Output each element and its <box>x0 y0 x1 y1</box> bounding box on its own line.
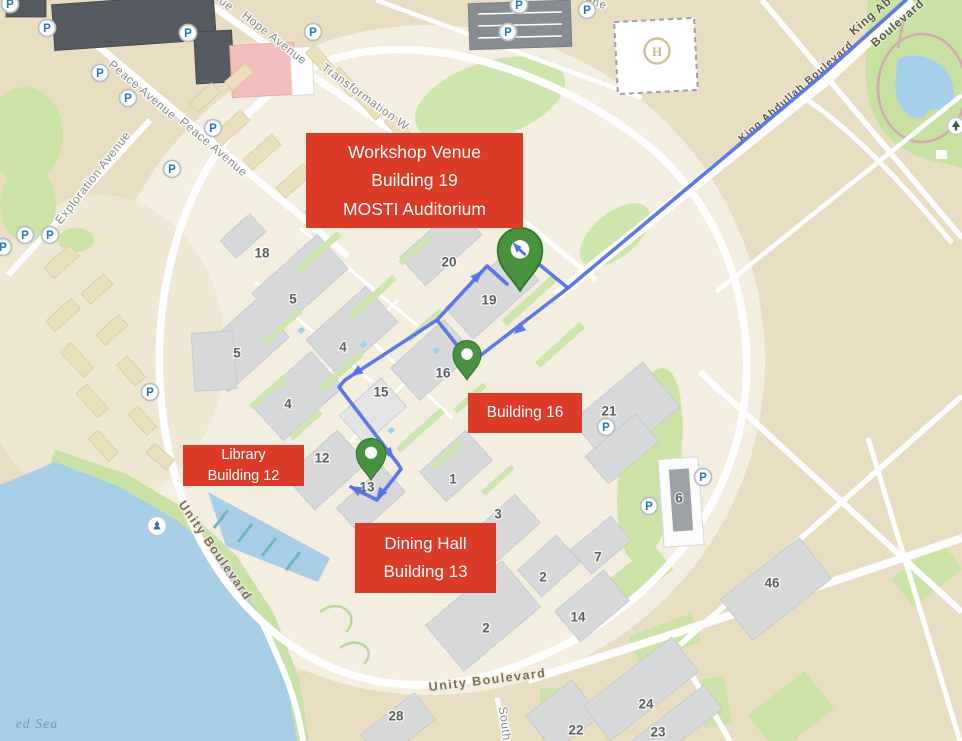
building-number-46: 46 <box>764 576 780 591</box>
parking-icon[interactable]: P <box>0 239 12 256</box>
building-number-5: 5 <box>233 346 241 361</box>
svg-text:P: P <box>583 5 591 17</box>
building-number-19: 19 <box>481 293 496 308</box>
library-label-line1: Library <box>221 445 265 465</box>
svg-text:P: P <box>146 387 154 399</box>
svg-text:P: P <box>6 0 14 11</box>
building-number-2: 2 <box>482 621 490 636</box>
building-number-21: 21 <box>601 404 617 419</box>
library-label-line2: Building 12 <box>208 466 280 486</box>
dining-hall-label-line1: Dining Hall <box>384 530 466 558</box>
svg-text:P: P <box>46 230 54 242</box>
workshop-venue-label-line2: Building 19 <box>371 166 458 194</box>
dining-hall-label: Dining Hall Building 13 <box>355 523 496 593</box>
parking-icon[interactable]: P <box>305 24 322 41</box>
svg-text:P: P <box>504 27 512 39</box>
svg-text:P: P <box>21 230 29 242</box>
svg-text:P: P <box>209 123 217 135</box>
svg-text:P: P <box>184 28 192 40</box>
parking-icon[interactable]: P <box>2 0 19 13</box>
workshop-venue-label-line1: Workshop Venue <box>348 138 481 166</box>
building-number-20: 20 <box>441 255 456 270</box>
parking-icon[interactable]: P <box>695 469 712 486</box>
building-number-18: 18 <box>254 246 270 261</box>
parking-icon[interactable]: P <box>641 498 658 515</box>
svg-text:P: P <box>699 472 707 484</box>
parking-icon[interactable]: P <box>180 25 197 42</box>
svg-text:P: P <box>96 68 104 80</box>
building-number-16: 16 <box>435 366 451 381</box>
campus-map[interactable]: H <box>0 0 962 741</box>
parking-icon[interactable]: P <box>17 227 34 244</box>
parking-icon[interactable]: P <box>120 90 137 107</box>
svg-text:P: P <box>0 242 7 254</box>
building-number-6: 6 <box>675 491 683 506</box>
parking-icon[interactable]: P <box>92 65 109 82</box>
svg-text:P: P <box>43 23 51 35</box>
library-label: Library Building 12 <box>183 445 304 486</box>
building-number-28: 28 <box>388 709 404 724</box>
parking-icon[interactable]: P <box>598 419 615 436</box>
building-16-label: Building 16 <box>468 393 582 433</box>
parking-icon[interactable]: P <box>142 384 159 401</box>
parking-icon[interactable]: P <box>579 2 596 19</box>
svg-text:P: P <box>515 0 523 12</box>
building-number-3: 3 <box>494 507 502 522</box>
dining-hall-label-line2: Building 13 <box>383 558 467 586</box>
svg-text:P: P <box>602 422 610 434</box>
parking-icon[interactable]: P <box>500 24 517 41</box>
fountain-icon[interactable] <box>148 517 167 536</box>
svg-text:P: P <box>645 501 653 513</box>
building-number-1: 1 <box>449 472 457 487</box>
building-number-2: 2 <box>539 570 547 585</box>
svg-text:P: P <box>124 93 132 105</box>
building-number-14: 14 <box>570 610 586 625</box>
building-number-7: 7 <box>594 550 602 565</box>
building-16-label-line1: Building 16 <box>487 400 564 425</box>
map-canvas: H <box>0 0 962 741</box>
parking-icon[interactable]: P <box>164 161 181 178</box>
building-number-15: 15 <box>373 385 389 400</box>
workshop-venue-label-line3: MOSTI Auditorium <box>343 195 486 223</box>
building-number-5: 5 <box>289 292 297 307</box>
svg-text:P: P <box>168 164 176 176</box>
building-number-24: 24 <box>638 697 654 712</box>
parking-icon[interactable]: P <box>39 20 56 37</box>
building-number-4: 4 <box>339 340 347 355</box>
street-label-red-sea: ed Sea <box>16 716 59 731</box>
workshop-venue-label: Workshop Venue Building 19 MOSTI Auditor… <box>306 133 523 228</box>
helipad-letter: H <box>652 44 662 59</box>
building-number-23: 23 <box>650 725 666 740</box>
parking-icon[interactable]: P <box>511 0 528 14</box>
parking-icon[interactable]: P <box>42 227 59 244</box>
svg-text:P: P <box>309 27 317 39</box>
helipad-building: H <box>614 18 698 94</box>
building-number-4: 4 <box>284 397 292 412</box>
parking-icon[interactable]: P <box>205 120 222 137</box>
building-number-22: 22 <box>568 723 583 738</box>
tree-icon[interactable] <box>948 118 962 135</box>
building-number-12: 12 <box>314 451 329 466</box>
